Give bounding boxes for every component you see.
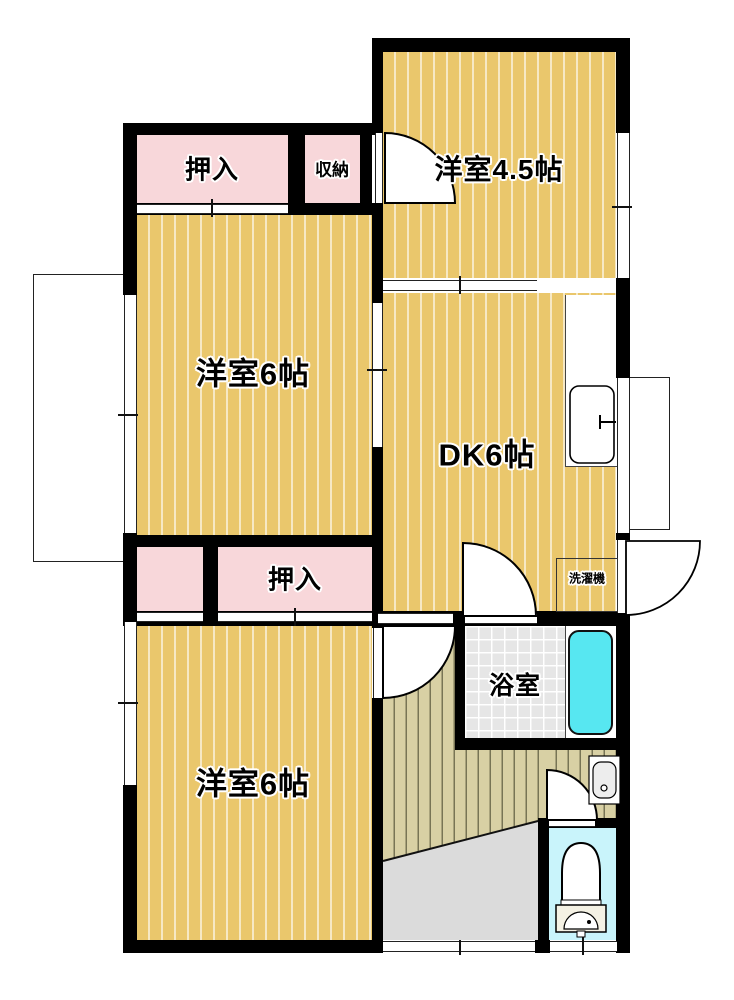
- wall-segment: [616, 278, 630, 378]
- kitchen-counter: [565, 295, 617, 467]
- bathtub-zone: [565, 626, 616, 738]
- wall-segment: [372, 38, 383, 133]
- wall-tick: [367, 369, 387, 371]
- wall-tick: [211, 199, 213, 217]
- wall-segment: [372, 698, 383, 940]
- wall-segment: [123, 940, 383, 953]
- wall-segment: [535, 940, 550, 953]
- room-label-dk: DK6帖: [438, 430, 535, 475]
- wall-tick: [118, 414, 138, 416]
- wall-tick: [459, 276, 461, 294]
- wall-segment: [123, 785, 137, 953]
- room-label-western-4-5: 洋室4.5帖: [435, 148, 564, 188]
- sliding-door-room6-dk: [372, 303, 383, 447]
- wall-segment: [616, 38, 630, 133]
- doorway-room45: [375, 133, 383, 203]
- wall-segment: [288, 123, 305, 215]
- wall-segment: [617, 940, 630, 953]
- room-label-western-6-bottom: 洋室6帖: [196, 759, 310, 804]
- toilet-room-floor: [549, 828, 616, 940]
- wall-segment: [360, 123, 372, 215]
- room-label-western-6-mid: 洋室6帖: [196, 349, 310, 394]
- wall-segment: [372, 203, 383, 303]
- room-label-oshiire-bottom: 押入: [268, 560, 322, 597]
- closet-floor-small: [137, 547, 203, 611]
- wall-segment: [538, 818, 549, 940]
- doorway-entrance: [617, 540, 630, 613]
- wall-segment: [616, 613, 630, 953]
- doorway-room6-bottom: [373, 628, 383, 698]
- doorway-bathroom: [465, 613, 537, 624]
- room-label-oshiire-top: 押入: [185, 150, 239, 187]
- room-label-shuno: 収納: [315, 156, 349, 181]
- wall-tick: [294, 608, 296, 626]
- hallway-floor-right: [455, 750, 617, 818]
- wall-segment: [455, 617, 465, 750]
- wall-tick: [118, 702, 138, 704]
- wall-segment: [123, 535, 383, 547]
- exterior-box-right: [627, 377, 670, 530]
- sliding-door-closet-small: [137, 612, 203, 622]
- door-arc-entrance: [626, 541, 700, 615]
- doorway-hall-dk: [378, 613, 453, 624]
- wall-segment: [123, 123, 380, 135]
- floorplan-canvas: 洋室4.5帖 洋室6帖 DK6帖 洋室6帖 押入 収納 押入 浴室 洗濯機: [0, 0, 734, 1000]
- window-kitchen: [617, 378, 630, 533]
- wall-segment: [455, 738, 630, 750]
- wall-segment: [372, 38, 630, 52]
- label-washing-machine: 洗濯機: [569, 570, 605, 587]
- balcony-left: [33, 274, 127, 562]
- room-label-bath: 浴室: [489, 666, 541, 702]
- wall-tick: [582, 937, 584, 955]
- wall-segment: [616, 533, 630, 540]
- wall-tick: [459, 937, 461, 955]
- doorway-toilet: [549, 819, 595, 827]
- wall-tick: [612, 206, 632, 208]
